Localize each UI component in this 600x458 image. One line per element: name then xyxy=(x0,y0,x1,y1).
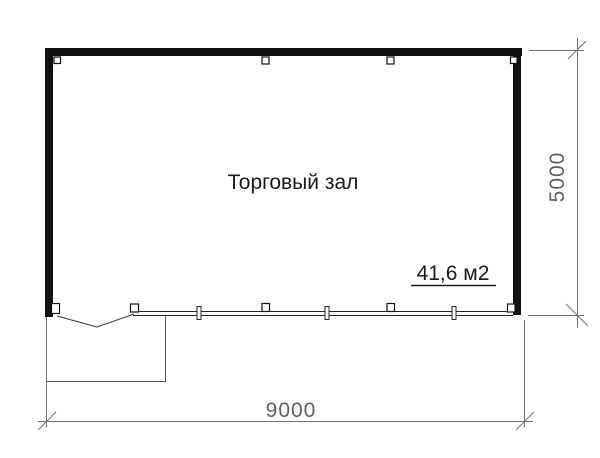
column-post xyxy=(508,304,516,312)
window-mullion-tick xyxy=(325,307,329,320)
room-label: Торговый зал xyxy=(228,171,359,194)
column-post xyxy=(262,57,269,64)
door-swing xyxy=(57,314,134,327)
column-post xyxy=(52,304,60,314)
dim-height-label: 5000 xyxy=(546,152,569,203)
column-post xyxy=(387,57,394,64)
window-mullion-tick xyxy=(197,307,201,320)
top-wall xyxy=(45,48,522,56)
column-post xyxy=(511,57,518,64)
floor-plan-drawing: Торговый зал 41,6 м2 9000 5000 xyxy=(0,0,600,458)
left-wall xyxy=(45,48,53,317)
area-label: 41,6 м2 xyxy=(417,262,490,285)
floor-plan-canvas: Торговый зал 41,6 м2 9000 5000 xyxy=(0,0,600,458)
porch-outline xyxy=(46,316,166,382)
column-post xyxy=(387,304,395,312)
dim-width-label: 9000 xyxy=(266,399,317,422)
window-mullion-tick xyxy=(452,307,456,320)
right-wall xyxy=(513,48,521,315)
column-post xyxy=(262,304,270,312)
column-post xyxy=(54,57,61,64)
column-post xyxy=(131,304,139,312)
window-mullions xyxy=(197,307,456,320)
